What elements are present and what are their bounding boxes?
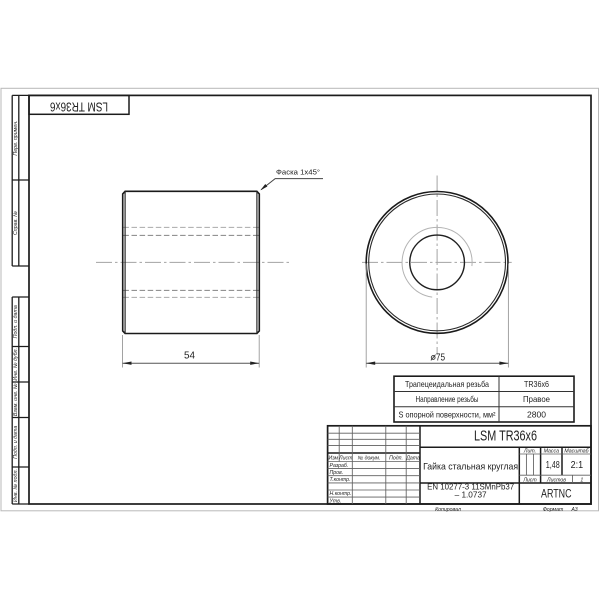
svg-text:S опорной поверхности, мм²: S опорной поверхности, мм² [399,411,496,420]
svg-text:Изм: Изм [328,456,338,462]
svg-text:2800: 2800 [527,411,546,420]
svg-text:Инв. № дубл.: Инв. № дубл. [13,348,19,381]
svg-text:Направление резьбы: Направление резьбы [416,395,479,404]
svg-text:Пров.: Пров. [330,470,344,476]
svg-text:Утв.: Утв. [330,498,342,504]
svg-text:Лист: Лист [338,456,353,462]
svg-text:Подп.: Подп. [389,456,403,462]
svg-text:Гайка стальная круглая: Гайка стальная круглая [423,461,518,471]
svg-text:1,48: 1,48 [546,460,560,471]
svg-text:LSM TR36x6: LSM TR36x6 [474,428,537,444]
svg-text:Справ. №: Справ. № [13,211,19,235]
svg-text:№ докум.: № докум. [358,456,381,462]
svg-text:Разраб.: Разраб. [330,463,349,469]
svg-text:Листов: Листов [546,478,566,484]
svg-text:75: 75 [436,353,445,364]
svg-text:Дата: Дата [405,456,420,462]
svg-text:TR36x6: TR36x6 [524,380,549,389]
svg-text:Лист: Лист [522,478,537,484]
svg-text:Перв. примен.: Перв. примен. [13,120,19,155]
svg-text:Формат: Формат [543,507,564,513]
svg-text:Взам. инв. №: Взам. инв. № [13,383,19,416]
svg-text:Инв. № подл.: Инв. № подл. [13,469,19,502]
svg-text:Копировал: Копировал [435,507,461,513]
svg-text:Лит.: Лит. [523,448,536,454]
svg-text:Подп. и дата: Подп. и дата [13,426,19,459]
svg-text:Н.контр.: Н.контр. [330,491,352,497]
svg-text:2:1: 2:1 [571,460,584,471]
svg-text:Правое: Правое [523,395,550,404]
svg-text:Подп. и дата: Подп. и дата [13,305,19,338]
svg-text:Масса: Масса [544,448,559,454]
svg-text:Трапецеидальная резьба: Трапецеидальная резьба [405,380,489,389]
svg-text:ARTNC: ARTNC [541,486,572,500]
svg-text:Фаска 1x45°: Фаска 1x45° [276,168,320,177]
svg-text:54: 54 [184,350,195,361]
svg-text:LSM TR36x6: LSM TR36x6 [50,99,108,113]
svg-text:1: 1 [580,478,583,484]
svg-text:Т.контр.: Т.контр. [330,477,351,483]
svg-text:Масштаб: Масштаб [564,448,589,454]
svg-text:– 1.0737: – 1.0737 [455,490,487,500]
svg-text:A3: A3 [570,507,577,513]
